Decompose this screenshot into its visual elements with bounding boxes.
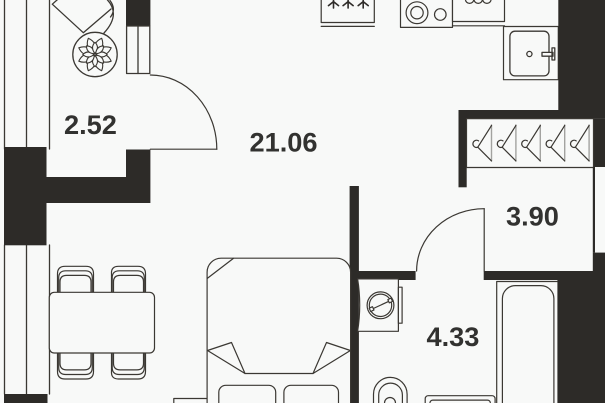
svg-text:2.52: 2.52	[64, 109, 117, 140]
svg-text:4.33: 4.33	[427, 321, 480, 352]
svg-text:21.06: 21.06	[250, 127, 318, 158]
svg-text:3.90: 3.90	[506, 201, 559, 232]
